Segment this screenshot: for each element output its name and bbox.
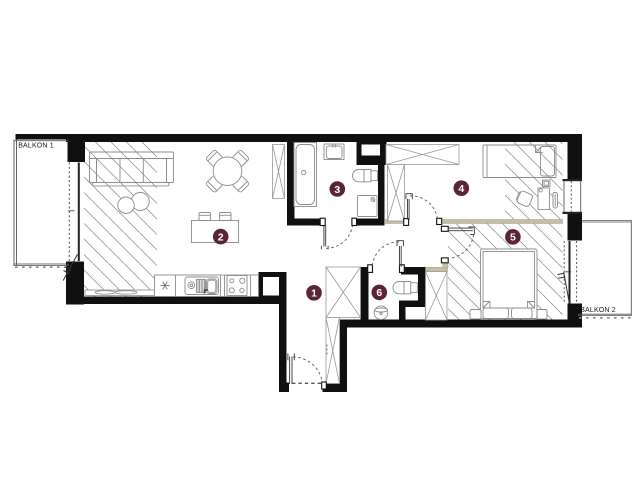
svg-text:BALKON 2: BALKON 2 xyxy=(580,307,616,314)
svg-text:5: 5 xyxy=(510,232,516,244)
svg-text:2: 2 xyxy=(218,231,224,243)
svg-text:1: 1 xyxy=(311,288,317,300)
svg-text:3: 3 xyxy=(334,184,340,196)
svg-text:BALKON 1: BALKON 1 xyxy=(18,143,54,150)
svg-text:4: 4 xyxy=(458,183,464,195)
svg-text:6: 6 xyxy=(376,287,382,299)
